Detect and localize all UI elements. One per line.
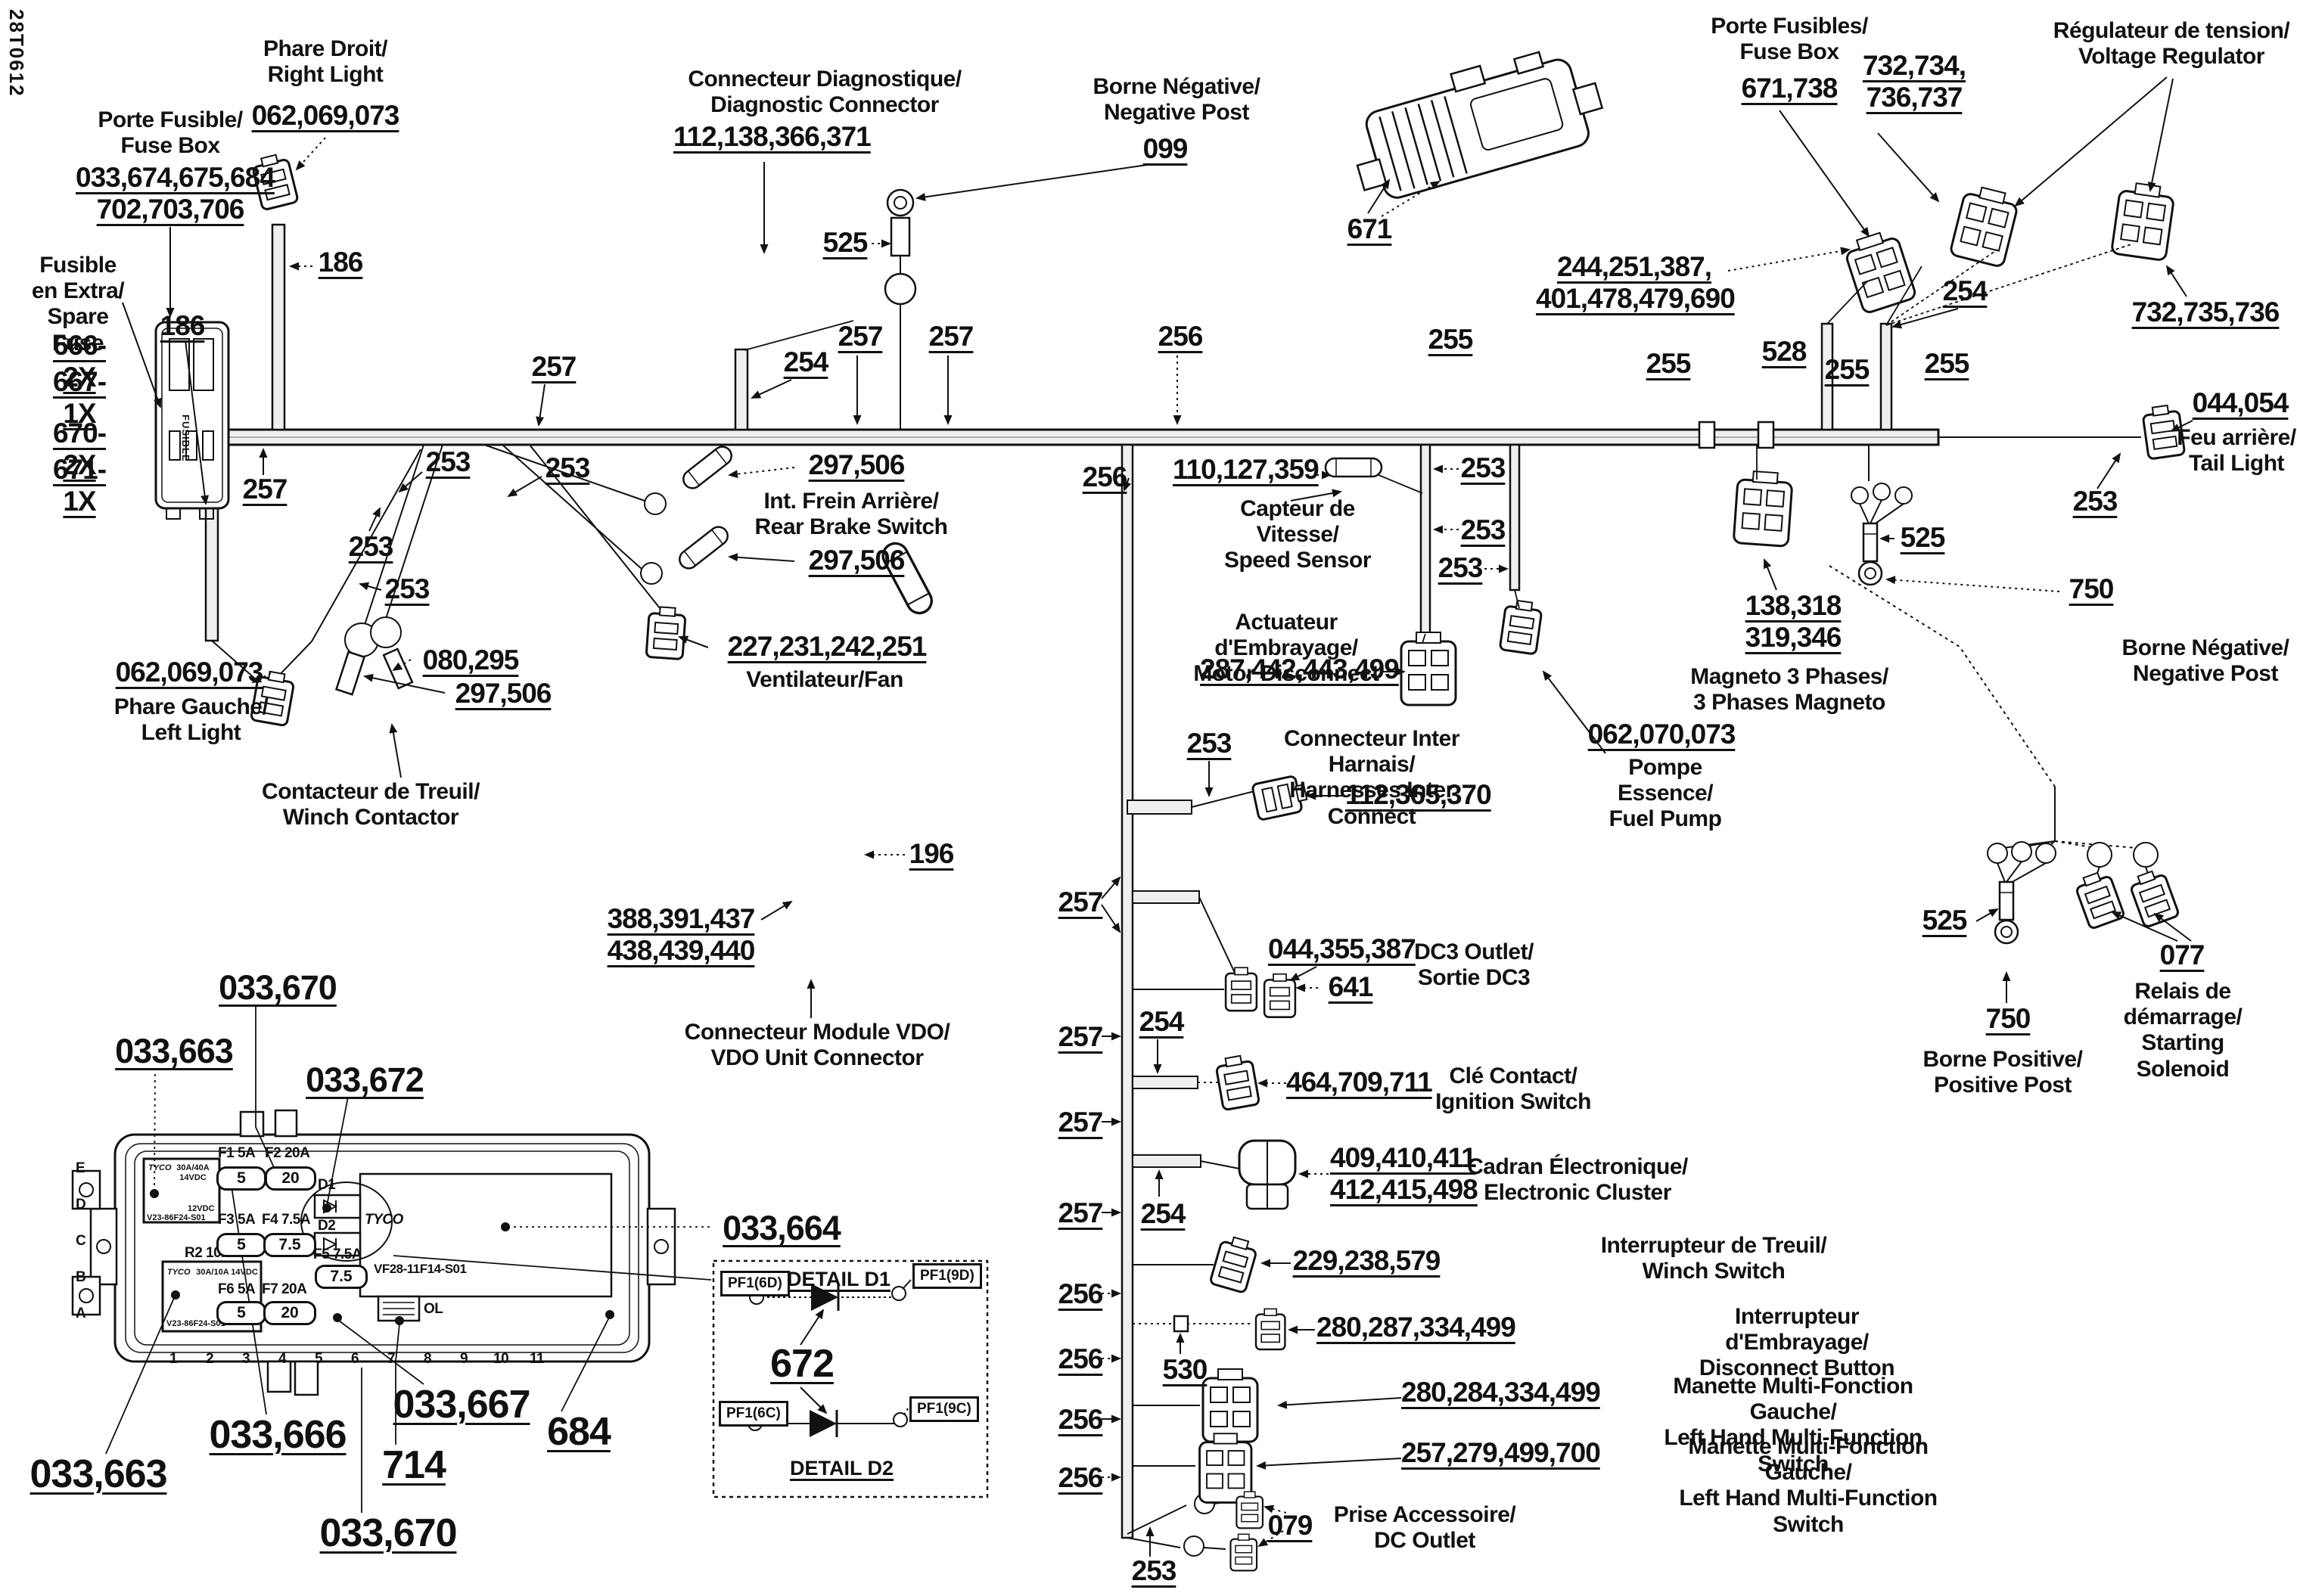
callout-255-b: 255: [1642, 348, 1695, 380]
ol-label: OL: [424, 1301, 443, 1318]
fuse-f3-label: F3 5A: [218, 1212, 255, 1228]
tree-256-2: 256: [1056, 1343, 1105, 1375]
inter-harness-label: Connecteur Inter Harnais/ Harnesses Inte…: [1247, 726, 1497, 830]
document-code: 28T0612: [5, 9, 27, 98]
fusebox-033666: 033,666: [198, 1413, 357, 1458]
diode-d2-label: D2: [318, 1218, 335, 1234]
relay1-rating: 30A/40A 14VDC: [168, 1163, 218, 1182]
fuse-f4-label: F4 7.5A: [262, 1212, 310, 1228]
tyco-circle-label: TYCO: [365, 1212, 403, 1228]
pin-letter-e: E: [76, 1160, 85, 1177]
fuel-pump-label: Pompe Essence/ Fuel Pump: [1578, 755, 1752, 833]
tree-257-1: 257: [1056, 886, 1105, 918]
fuse-f6: 5: [216, 1301, 266, 1325]
relay2-part: V23-86F24-S01: [166, 1319, 225, 1329]
pin-6: 6: [351, 1351, 359, 1368]
negative-post-center: [885, 190, 915, 430]
dc3-partnums: 044,355,387: [1268, 933, 1412, 965]
tree-256-1: 256: [1056, 1278, 1105, 1310]
pin-9: 9: [460, 1351, 468, 1368]
fuse-f2: 20: [265, 1166, 316, 1191]
winch-contactor-partnums-2: 297,506: [439, 678, 567, 710]
fuse-f2-label: F2 20A: [265, 1145, 309, 1162]
pin-7: 7: [387, 1351, 395, 1368]
left-light-label: Phare Gauche/ Left Light: [110, 694, 272, 746]
voltage-regulator-label: Régulateur de tension/ Voltage Regulator: [2043, 18, 2297, 70]
callout-254-cluster: 254: [1135, 1198, 1191, 1230]
fuse-holder-label: Porte Fusible/ Fuse Box: [83, 107, 257, 159]
fusebox-671-illustration: [1340, 36, 1610, 206]
callout-253-b: 253: [543, 452, 592, 484]
main-harness-bus: [227, 422, 2141, 448]
fuse-f1: 5: [216, 1166, 266, 1191]
fuse-holder-partnums: 033,674,675,684 702,703,706: [76, 162, 265, 225]
fuse-f5: 7.5: [315, 1265, 368, 1289]
fusebox-684: 684: [530, 1410, 628, 1455]
detail-d1-title: DETAIL D1: [787, 1268, 891, 1291]
fuse-f1-label: F1 5A: [218, 1145, 255, 1162]
wiring-diagram-canvas: 28T0612 Phare Droit/ Right Light 062,069…: [0, 0, 2297, 1596]
callout-525-solenoid: 525: [1913, 905, 1976, 936]
callout-525-right: 525: [1894, 522, 1950, 554]
tail-light-label: Feu arrière/ Tail Light: [2176, 425, 2297, 477]
pin-5: 5: [315, 1351, 322, 1368]
callout-254-diag: 254: [779, 346, 832, 378]
tree-257-2: 257: [1056, 1021, 1105, 1053]
disconnect-button-label: Interrupteur d'Embrayage/ Disconnect But…: [1664, 1304, 1929, 1382]
pin-8: 8: [424, 1351, 431, 1368]
callout-750-negative: 750: [2059, 573, 2123, 605]
callout-253-g: 253: [1436, 552, 1484, 584]
relay2-rating: 30A/10A 14VDC: [195, 1268, 259, 1278]
vdo-partnums: 388,391,437 438,439,440: [598, 903, 764, 967]
callout-257-left: 257: [241, 474, 289, 505]
dc3-partnum-2: 641: [1316, 971, 1385, 1003]
rear-brake-label: Int. Frein Arrière/ Rear Brake Switch: [734, 489, 968, 540]
callout-257-a: 257: [530, 351, 578, 383]
fuel-pump-partnums: 062,070,073: [1571, 719, 1752, 750]
fuse-f4: 7.5: [263, 1233, 316, 1257]
mf-switch-2-label: Manette Multi-Fonction Gauche/ Left Hand…: [1657, 1434, 1960, 1538]
pin-11: 11: [530, 1351, 544, 1368]
tail-light-partnums: 044,054: [2184, 387, 2297, 419]
pin-3: 3: [242, 1351, 250, 1368]
voltage-regulator-partnums-1: 732,734, 736,737: [1854, 50, 1975, 113]
pin-letter-c: C: [76, 1233, 85, 1250]
starting-solenoid-label: Relais de démarrage/ Starting Solenoid: [2107, 979, 2258, 1082]
tree-257-4: 257: [1056, 1197, 1105, 1229]
fuse-holder-body-text: FUSIBLE: [179, 415, 191, 462]
fuse-f5-label: F5 7.5A: [313, 1247, 362, 1263]
callout-257-c: 257: [927, 321, 975, 352]
ignition-partnums: 464,709,711: [1286, 1067, 1430, 1098]
callout-256-a: 256: [1156, 321, 1204, 352]
callout-253-a: 253: [424, 446, 472, 478]
harness-partnums: 244,251,387, 401,478,479,690: [1536, 251, 1733, 315]
vdo-label: Connecteur Module VDO/ VDO Unit Connecto…: [658, 1020, 976, 1071]
disconnect-button-partnums: 280,287,334,499: [1316, 1312, 1506, 1343]
detail-pf1-6d: PF1(6D): [720, 1271, 790, 1296]
callout-253-inter: 253: [1185, 728, 1233, 759]
speed-sensor-label: Capteur de Vitesse/ Speed Sensor: [1222, 496, 1373, 574]
fusebox-714: 714: [365, 1443, 463, 1488]
callout-255-a: 255: [1424, 324, 1477, 356]
diagnostic-connector-partnums: 112,138,366,371: [673, 121, 870, 153]
right-light-partnums: 062,069,073: [250, 100, 401, 132]
rear-brake-partnums-1: 297,506: [796, 449, 917, 481]
callout-255-d: 255: [1920, 348, 1973, 380]
pin-4: 4: [278, 1351, 286, 1368]
winch-switch-partnums: 229,238,579: [1291, 1245, 1442, 1277]
fuse-f3: 5: [216, 1233, 266, 1257]
right-light-label: Phare Droit/ Right Light: [227, 36, 424, 88]
callout-257-b: 257: [836, 321, 884, 352]
callout-253-trunk: 253: [1126, 1555, 1182, 1587]
positive-post-label: Borne Positive/ Positive Post: [1901, 1047, 2105, 1098]
fusebox-033670-bottom: 033,670: [309, 1511, 468, 1556]
callout-671: 671: [1345, 213, 1394, 245]
callout-256-b: 256: [1080, 461, 1129, 493]
magneto-label: Magneto 3 Phases/ 3 Phases Magneto: [1687, 664, 1891, 716]
negative-post-right: [1851, 445, 1912, 585]
pin-2: 2: [206, 1351, 213, 1368]
fan-partnums: 227,231,242,251: [710, 631, 944, 663]
detail-pf1-6c: PF1(6C): [719, 1401, 788, 1427]
winch-contactor-label: Contacteur de Treuil/ Winch Contactor: [242, 779, 499, 831]
callout-255-c: 255: [1820, 354, 1873, 386]
rear-brake-partnums-2: 297,506: [796, 545, 917, 576]
fusebox-033663-bottom: 033,663: [23, 1452, 174, 1497]
negative-post-label: Borne Négative/ Negative Post: [1063, 74, 1290, 126]
callout-077: 077: [2150, 939, 2214, 971]
pin-letter-b: B: [76, 1269, 85, 1286]
negative-post-partnum: 099: [1127, 133, 1203, 165]
detail-pf1-9d: PF1(9D): [912, 1263, 982, 1289]
callout-253-e: 253: [1459, 452, 1507, 484]
callout-253-c: 253: [347, 531, 395, 563]
fuse-f7-label: F7 20A: [262, 1281, 306, 1298]
fusebox-033663-top: 033,663: [106, 1032, 242, 1070]
tree-257-3: 257: [1056, 1107, 1105, 1138]
wire-186-right: 186: [314, 247, 367, 278]
pin-letter-d: D: [76, 1197, 85, 1213]
wire-186-left: 186: [156, 310, 209, 342]
relay1-voltage: 12VDC: [188, 1204, 214, 1214]
fuse-f6-label: F6 5A: [218, 1281, 255, 1298]
callout-254-right: 254: [1937, 275, 1993, 307]
spare-fuse-holder: [156, 322, 228, 519]
detail-pf1-9c: PF1(9C): [909, 1396, 979, 1422]
negative-post-right-label: Borne Négative/ Negative Post: [2103, 635, 2297, 687]
callout-253-tail: 253: [2067, 486, 2123, 517]
detail-d2-title: DETAIL D2: [790, 1457, 894, 1480]
dc-outlet-label: Prise Accessoire/ DC Outlet: [1300, 1502, 1549, 1554]
callout-253-d: 253: [383, 573, 431, 605]
fusebox-033670-top: 033,670: [213, 968, 342, 1007]
callout-750-positive: 750: [1976, 1003, 2040, 1035]
main-fusebox: [73, 1110, 675, 1395]
fusebox-033664: 033,664: [710, 1209, 853, 1247]
fan-label: Ventilateur/Fan: [726, 667, 923, 693]
motor-disconnect-partnums: 287,442,443,499: [1200, 654, 1389, 685]
fusebox-033672: 033,672: [297, 1060, 433, 1099]
speed-sensor-partnums: 110,127,359: [1173, 454, 1316, 486]
tree-256-4: 256: [1056, 1462, 1105, 1494]
winch-contactor-partnums-1: 080,295: [410, 644, 531, 676]
relay1-part: V23-86F24-S01: [147, 1213, 206, 1223]
winch-switch-label: Interrupteur de Treuil/ Winch Switch: [1585, 1233, 1842, 1284]
detail-672: 672: [757, 1342, 847, 1386]
magneto-partnums: 138,318 319,346: [1740, 590, 1846, 654]
mf-switch-2-partnums: 257,279,499,700: [1401, 1437, 1590, 1469]
electronic-cluster-label: Cadran Électronique/ Electronic Cluster: [1449, 1154, 1706, 1206]
pin-letter-a: A: [76, 1306, 85, 1322]
solenoid-cluster: [1829, 566, 2179, 943]
fusebox-033667: 033,667: [382, 1383, 541, 1427]
tree-256-3: 256: [1056, 1404, 1105, 1436]
callout-530: 530: [1153, 1354, 1217, 1386]
panel-part-number: VF28-11F14-S01: [374, 1262, 466, 1276]
fusebox-671-partnums: 671,738: [1729, 73, 1850, 104]
callout-196: 196: [905, 838, 958, 870]
ignition-switch-label: Clé Contact/ Ignition Switch: [1422, 1063, 1604, 1115]
left-light-partnums: 062,069,073: [106, 657, 272, 688]
pin-1: 1: [169, 1351, 177, 1368]
diode-d1-label: D1: [318, 1177, 335, 1194]
inter-harness-partnums: 112,365,370: [1345, 779, 1489, 811]
relay2-brand: TYCO: [167, 1268, 191, 1278]
diagnostic-connector-label: Connecteur Diagnostique/ Diagnostic Conn…: [658, 67, 991, 118]
callout-528: 528: [1754, 336, 1814, 368]
spare-fuse-ref-4: 671-1X: [38, 454, 121, 517]
callout-525-center: 525: [817, 227, 873, 259]
mf-switch-1-partnums: 280,284,334,499: [1401, 1377, 1590, 1408]
pin-10: 10: [493, 1351, 508, 1368]
callout-254-ignition: 254: [1133, 1006, 1189, 1038]
voltage-regulator-partnums-2: 732,735,736: [2115, 297, 2296, 328]
callout-253-f: 253: [1459, 514, 1507, 546]
fuse-f7: 20: [263, 1301, 316, 1325]
dc3-outlet-label: DC3 Outlet/ Sortie DC3: [1398, 939, 1549, 991]
